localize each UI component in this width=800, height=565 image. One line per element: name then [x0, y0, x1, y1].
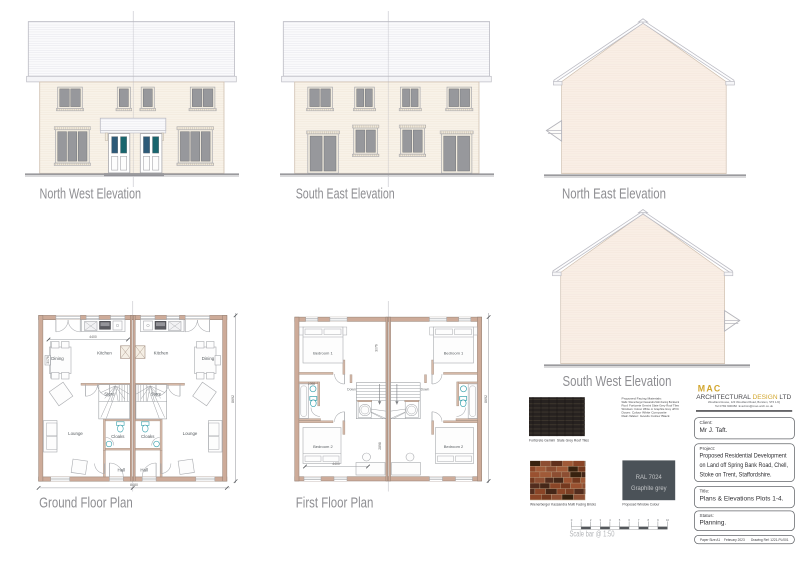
svg-text:Bedroom 2: Bedroom 2	[444, 444, 464, 449]
svg-text:Doors: Colour White Composite: Doors: Colour White Composite	[622, 411, 668, 415]
svg-text:Proposed Facing Materials:: Proposed Facing Materials:	[622, 396, 663, 400]
svg-text:Lounge: Lounge	[183, 431, 198, 436]
svg-text:Kitchen: Kitchen	[97, 351, 112, 356]
svg-text:Bedroom 1: Bedroom 1	[444, 351, 464, 356]
svg-text:Scale bar @ 1:50: Scale bar @ 1:50	[570, 530, 615, 539]
svg-text:Cloaks: Cloaks	[141, 434, 155, 439]
svg-text:1098: 1098	[308, 382, 315, 386]
svg-text:Hall: Hall	[118, 468, 126, 473]
svg-text:Drawing Ref: 1221-PL/001: Drawing Ref: 1221-PL/001	[751, 538, 789, 542]
svg-text:Store: Store	[151, 391, 162, 396]
svg-text:4400: 4400	[332, 462, 340, 466]
svg-text:Bedroom 2: Bedroom 2	[313, 444, 333, 449]
svg-text:Graphite grey: Graphite grey	[631, 485, 667, 492]
svg-text:4400: 4400	[89, 335, 97, 339]
svg-text:Cloaks: Cloaks	[111, 434, 125, 439]
svg-text:8692: 8692	[231, 395, 235, 403]
svg-text:Dining: Dining	[51, 356, 64, 361]
svg-text:Hall: Hall	[140, 468, 148, 473]
svg-text:Dining: Dining	[202, 356, 215, 361]
svg-text:Rain Water: Goods Colour Blac: Rain Water: Goods Colour Black	[622, 414, 671, 418]
svg-text:Lounge: Lounge	[68, 431, 83, 436]
svg-text:North East Elevation: North East Elevation	[562, 186, 666, 203]
svg-text:3076: 3076	[46, 356, 50, 364]
svg-text:Kitchen: Kitchen	[154, 351, 169, 356]
svg-text:RAL 7024: RAL 7024	[636, 474, 662, 481]
svg-text:Title:: Title:	[700, 489, 710, 494]
svg-text:Down: Down	[421, 388, 430, 392]
svg-text:South West Elevation: South West Elevation	[563, 373, 672, 390]
svg-text:Forticrete Gemini Slate Grey: Forticrete Gemini Slate Grey Roof Tiles	[529, 438, 589, 442]
svg-text:February 2023: February 2023	[724, 538, 745, 542]
svg-text:MAC: MAC	[698, 384, 722, 394]
svg-text:Wienerberger Kassandra Multi F: Wienerberger Kassandra Multi Facing Bric…	[530, 503, 596, 507]
svg-text:Tel 0782 900382 E:admin@mac-a: Tel 0782 900382 E:admin@mac-arch.co.uk	[715, 404, 774, 408]
svg-text:Bedroom 1: Bedroom 1	[313, 351, 333, 356]
svg-text:Plans & Elevations Plots 1-4.: Plans & Elevations Plots 1-4.	[700, 496, 784, 503]
svg-text:2898: 2898	[378, 442, 382, 450]
svg-text:Proposed Window Colour: Proposed Window Colour	[622, 503, 660, 507]
svg-text:South East Elevation: South East Elevation	[296, 186, 395, 203]
svg-text:Client:: Client:	[700, 420, 713, 425]
svg-text:Roof: Forticrete Gemini Slate: Roof: Forticrete Gemini Slate Grey Roof …	[622, 403, 680, 407]
svg-text:Walls: Wienerberger Kassandra: Walls: Wienerberger Kassandra Multi Faci…	[622, 400, 680, 404]
svg-text:Down: Down	[347, 388, 356, 392]
svg-text:Status:: Status:	[700, 513, 714, 518]
svg-text:on Land off Spring Bank Road,: on Land off Spring Bank Road, Chell,	[700, 462, 789, 469]
svg-text:Mr J. Taft.: Mr J. Taft.	[700, 427, 728, 434]
svg-text:Store: Store	[104, 391, 115, 396]
svg-text:Paper Size A1: Paper Size A1	[700, 538, 720, 542]
svg-text:Ground Floor Plan: Ground Floor Plan	[39, 494, 133, 511]
svg-text:3076: 3076	[375, 344, 379, 352]
svg-text:Stoke on Trent, Staffordshire.: Stoke on Trent, Staffordshire.	[700, 472, 772, 479]
svg-text:8692: 8692	[484, 395, 488, 403]
svg-text:8480: 8480	[130, 483, 138, 487]
svg-text:North West Elevation: North West Elevation	[40, 186, 142, 203]
svg-text:Project:: Project:	[700, 446, 716, 451]
svg-text:Planning.: Planning.	[700, 520, 727, 527]
svg-text:10: 10	[666, 518, 670, 522]
svg-text:Windows: Colour White or Graph: Windows: Colour White or Graphite Grey u…	[622, 407, 680, 411]
svg-text:Proposed Residential Developme: Proposed Residential Development	[700, 452, 787, 459]
svg-text:First Floor Plan: First Floor Plan	[296, 494, 374, 511]
